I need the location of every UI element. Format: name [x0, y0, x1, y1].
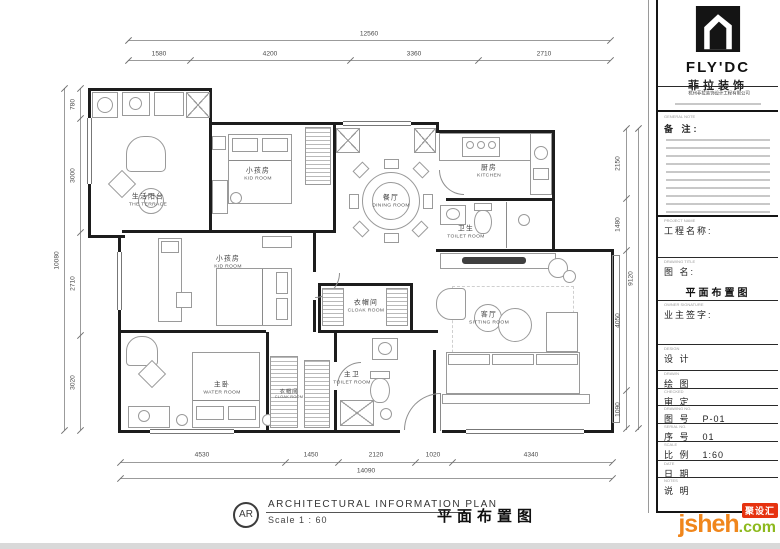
field-label: 图 名:: [664, 265, 772, 278]
room-label-en: TOILET ROOM: [447, 233, 484, 239]
dimension-tick: [623, 425, 630, 432]
dresser-stool-icon: [138, 410, 150, 422]
field-tiny-label: OWNER SIGNATURE: [664, 303, 718, 306]
blanket-line: [193, 400, 259, 401]
dining-chair-icon: [353, 162, 370, 179]
company-subline: [675, 103, 761, 105]
pillow-icon: [228, 406, 256, 420]
drawing-scale-text: Scale 1 : 60: [268, 515, 328, 525]
field-tiny-label: PROJECT NAME: [664, 219, 718, 222]
dimension-line: [638, 128, 639, 430]
company-name: 杭州菲拉装饰设计工程有限公司: [664, 90, 774, 96]
wall: [88, 88, 212, 91]
tv-icon: [462, 257, 526, 264]
watermark-text: jsheh: [678, 510, 738, 538]
room-label-kid-room-2: 小孩房 KID ROOM: [214, 254, 242, 269]
field-date: DATE 日 期: [658, 460, 778, 477]
room-label-sitting: 客厅 SITTING ROOM: [469, 310, 509, 325]
cabinet-icon: [154, 92, 184, 116]
dining-chair-icon: [384, 233, 399, 243]
flydc-logo-icon: [692, 6, 744, 52]
field-label: 设 计: [664, 352, 772, 365]
dimension-line: [128, 40, 610, 41]
sofa-cushion-icon: [448, 354, 490, 365]
field-drawing-title: DRAWING TITLE 图 名: 平面布置图: [658, 257, 778, 300]
notes-label: 备 注:: [664, 122, 772, 135]
window: [150, 429, 234, 434]
room-label-toilet: 卫生 TOILET ROOM: [447, 224, 484, 239]
dimension-tick: [635, 425, 642, 432]
drawing-title-underline: [266, 512, 466, 513]
floor-plan-sheet: 生活阳台 THE TERRACE 小孩房 KID ROOM 餐厅 DINING …: [0, 0, 780, 549]
kitchen-side-counter-icon: [530, 133, 552, 195]
field-drawing-no: DRAWING NO. 图 号P-01: [658, 405, 778, 423]
wall: [122, 230, 336, 233]
title-block-company-section: 杭州菲拉装饰设计工程有限公司: [658, 86, 778, 110]
dimension-line: [128, 60, 610, 61]
dimension-tick: [607, 37, 614, 44]
room-label-en: CLOAK ROOM: [275, 395, 303, 400]
field-tiny-label: NOTES: [664, 479, 718, 482]
room-label-dining: 餐厅 DINING ROOM: [372, 193, 410, 208]
nightstand-icon: [212, 136, 226, 150]
room-label-master-toilet: 主卫 TOILET ROOM: [333, 370, 370, 385]
room-label-zh: 餐厅: [372, 193, 410, 202]
room-label-kitchen: 厨房 KITCHEN: [477, 163, 501, 178]
brand-name: FLY'DC: [664, 59, 772, 76]
blanket-line: [229, 160, 291, 161]
title-block-logo-section: FLY'DC 菲拉装饰: [658, 0, 778, 86]
dimension-label: 2710: [69, 269, 76, 298]
room-label-en: WATER ROOM: [203, 389, 240, 395]
room-label-en: DINING ROOM: [372, 202, 410, 208]
pillow-icon: [276, 272, 288, 294]
sofa-base-icon: [442, 394, 590, 404]
room-label-zh: 小孩房: [244, 166, 272, 175]
wardrobe-icon: [322, 288, 344, 326]
dimension-line: [64, 88, 65, 430]
dimension-line: [120, 478, 612, 479]
dining-chair-icon: [413, 162, 430, 179]
dimension-label: 14090: [357, 467, 375, 474]
room-label-master: 主卧 WATER ROOM: [203, 380, 240, 395]
notes-tiny-label: GENERAL NOTE: [664, 115, 718, 118]
room-label-zh: 卫生: [447, 224, 484, 233]
field-label: 工程名称:: [664, 224, 772, 237]
room-label-en: KID ROOM: [244, 175, 272, 181]
dimension-label: 1090: [614, 395, 621, 424]
wall: [334, 332, 337, 362]
dimension-label: 4050: [614, 306, 621, 335]
pillow-icon: [262, 138, 288, 152]
dimension-label: 3000: [69, 161, 76, 190]
wardrobe-icon: [386, 288, 408, 326]
closet-icon: [305, 127, 331, 185]
dimension-tick: [607, 57, 614, 64]
sofa-cushion-icon: [536, 354, 578, 365]
shaft-xbox: [336, 128, 360, 153]
shower-tray-icon: [340, 400, 374, 426]
dimension-label: 4340: [524, 451, 539, 458]
watermark-badge: 聚设汇: [742, 503, 778, 518]
sofa-cushion-icon: [492, 354, 534, 365]
notes-paragraph: [666, 139, 770, 213]
field-tiny-label: DRAWN: [664, 372, 718, 375]
dresser-icon: [262, 236, 292, 248]
field-tiny-label: DESIGN: [664, 347, 718, 350]
field-checked: CHECKED 审 定: [658, 388, 778, 405]
room-label-zh: 厨房: [477, 163, 501, 172]
window: [466, 429, 584, 434]
room-label-en: SITTING ROOM: [469, 319, 509, 325]
room-label-zh: 衣帽间: [275, 388, 303, 395]
dimension-label: 4200: [263, 50, 278, 57]
dimension-label: 10080: [53, 246, 60, 275]
title-block-outer-line: [648, 0, 649, 513]
dimension-label: 1450: [304, 451, 319, 458]
field-tiny-label: DRAWING TITLE: [664, 260, 718, 263]
stool-icon: [176, 414, 188, 426]
wall: [313, 300, 316, 332]
room-label-en: KID ROOM: [214, 263, 242, 269]
shaft-xbox: [186, 92, 210, 118]
dimension-label: 1580: [152, 50, 167, 57]
watermark: jsheh.com 聚设汇: [678, 510, 776, 539]
dimension-tick: [609, 475, 616, 482]
room-label-en: KITCHEN: [477, 172, 501, 178]
wardrobe-icon: [304, 360, 330, 428]
armchair-icon: [436, 288, 466, 320]
dining-chair-icon: [384, 159, 399, 169]
kitchen-sink-icon: [534, 146, 548, 160]
bay-window-line: [612, 255, 620, 256]
entry-door-leaf: [440, 393, 441, 431]
door-arc: [439, 170, 464, 195]
room-label-zh: 衣帽间: [348, 298, 385, 307]
kitchen-appliance-icon: [533, 168, 549, 180]
field-tiny-label: DATE: [664, 462, 718, 465]
title-block: FLY'DC 菲拉装饰 杭州菲拉装饰设计工程有限公司 GENERAL NOTE …: [656, 0, 778, 513]
wall: [552, 130, 555, 252]
chaise-icon: [546, 312, 578, 352]
dining-chair-icon: [353, 221, 370, 238]
dining-chair-icon: [412, 221, 429, 238]
armchair-icon: [126, 136, 166, 172]
dimension-label: 3360: [407, 50, 422, 57]
dining-chair-icon: [423, 194, 433, 209]
dimension-label: 1480: [614, 210, 621, 239]
room-label-en: THE TERRACE: [129, 201, 167, 207]
dimension-label: 4530: [195, 451, 210, 458]
pillow-icon: [232, 138, 258, 152]
field-drawn: DRAWN 绘 图: [658, 370, 778, 388]
dimension-tick: [77, 427, 84, 434]
field-project-name: PROJECT NAME 工程名称:: [658, 215, 778, 257]
dimension-tick: [61, 427, 68, 434]
dimension-label: 2150: [614, 149, 621, 178]
photo-edge-strip: [0, 543, 780, 549]
dimension-label: 2710: [537, 50, 552, 57]
burner-icon: [488, 141, 496, 149]
room-label-en: TOILET ROOM: [333, 379, 370, 385]
dimension-line: [80, 88, 81, 430]
sink-bowl-icon: [378, 342, 392, 355]
shower-divider-line: [506, 202, 507, 248]
dimension-label: 2120: [369, 451, 384, 458]
field-label: 说 明: [664, 484, 772, 497]
plant-icon: [563, 270, 576, 283]
room-label-terrace: 生活阳台 THE TERRACE: [129, 192, 167, 207]
wall: [436, 249, 614, 252]
wall: [313, 232, 316, 272]
chair-icon: [230, 192, 242, 204]
bay-window-line: [612, 255, 613, 423]
watermark-suffix: .com: [739, 519, 776, 536]
room-label-cloak-room-2: 衣帽间 CLOAK ROOM: [275, 388, 303, 400]
dining-chair-icon: [349, 194, 359, 209]
wall: [334, 390, 337, 430]
title-block-notes-section: GENERAL NOTE 备 注:: [658, 110, 778, 215]
window: [87, 118, 92, 184]
field-label: 业主签字:: [664, 308, 772, 321]
dimension-line: [120, 462, 612, 463]
room-label-zh: 客厅: [469, 310, 509, 319]
room-label-zh: 生活阳台: [129, 192, 167, 201]
wall: [446, 198, 552, 201]
desk-icon: [212, 180, 228, 214]
wall: [120, 330, 266, 333]
field-tiny-label: CHECKED: [664, 390, 718, 393]
shaft-xbox: [414, 128, 436, 153]
dimension-label: 3020: [69, 368, 76, 397]
field-owner-signature: OWNER SIGNATURE 业主签字:: [658, 300, 778, 344]
room-label-zh: 主卧: [203, 380, 240, 389]
field-tiny-label: SCALE: [664, 443, 718, 446]
field-tiny-label: SERIAL NO.: [664, 425, 718, 428]
field-tiny-label: DRAWING NO.: [664, 407, 718, 410]
window: [117, 252, 122, 310]
field-serial-no: SERIAL NO. 序 号01: [658, 423, 778, 441]
dimension-label: 12560: [360, 30, 378, 37]
window: [343, 121, 411, 126]
drawing-code-badge: AR: [233, 502, 259, 528]
pillow-icon: [276, 298, 288, 320]
washing-machine-drum-icon: [97, 97, 113, 113]
room-label-kid-room-1: 小孩房 KID ROOM: [244, 166, 272, 181]
entry-door-arc: [404, 393, 441, 430]
wall: [410, 283, 413, 330]
room-label-cloak-room-1: 衣帽间 CLOAK ROOM: [348, 298, 385, 313]
shower-head-icon: [380, 408, 392, 420]
drawing-title-zh: 平面布置图: [437, 505, 537, 526]
field-scale: SCALE 比 例1:60: [658, 441, 778, 460]
dimension-tick: [609, 459, 616, 466]
dimension-label: 780: [69, 90, 76, 119]
pillow-icon: [161, 241, 179, 253]
field-value: 平面布置图: [664, 284, 772, 299]
sink-bowl-icon: [129, 97, 142, 110]
room-label-en: CLOAK ROOM: [348, 307, 385, 313]
burner-icon: [477, 141, 485, 149]
dimension-label: 1020: [426, 451, 441, 458]
dimension-label: 9120: [627, 264, 634, 293]
burner-icon: [466, 141, 474, 149]
pillow-icon: [196, 406, 224, 420]
field-design: DESIGN 设 计: [658, 344, 778, 370]
side-table-icon: [176, 292, 192, 308]
sink-bowl-icon: [446, 208, 460, 220]
room-label-zh: 小孩房: [214, 254, 242, 263]
room-label-zh: 主卫: [333, 370, 370, 379]
blanket-line: [262, 269, 263, 325]
shower-head-icon: [518, 214, 530, 226]
